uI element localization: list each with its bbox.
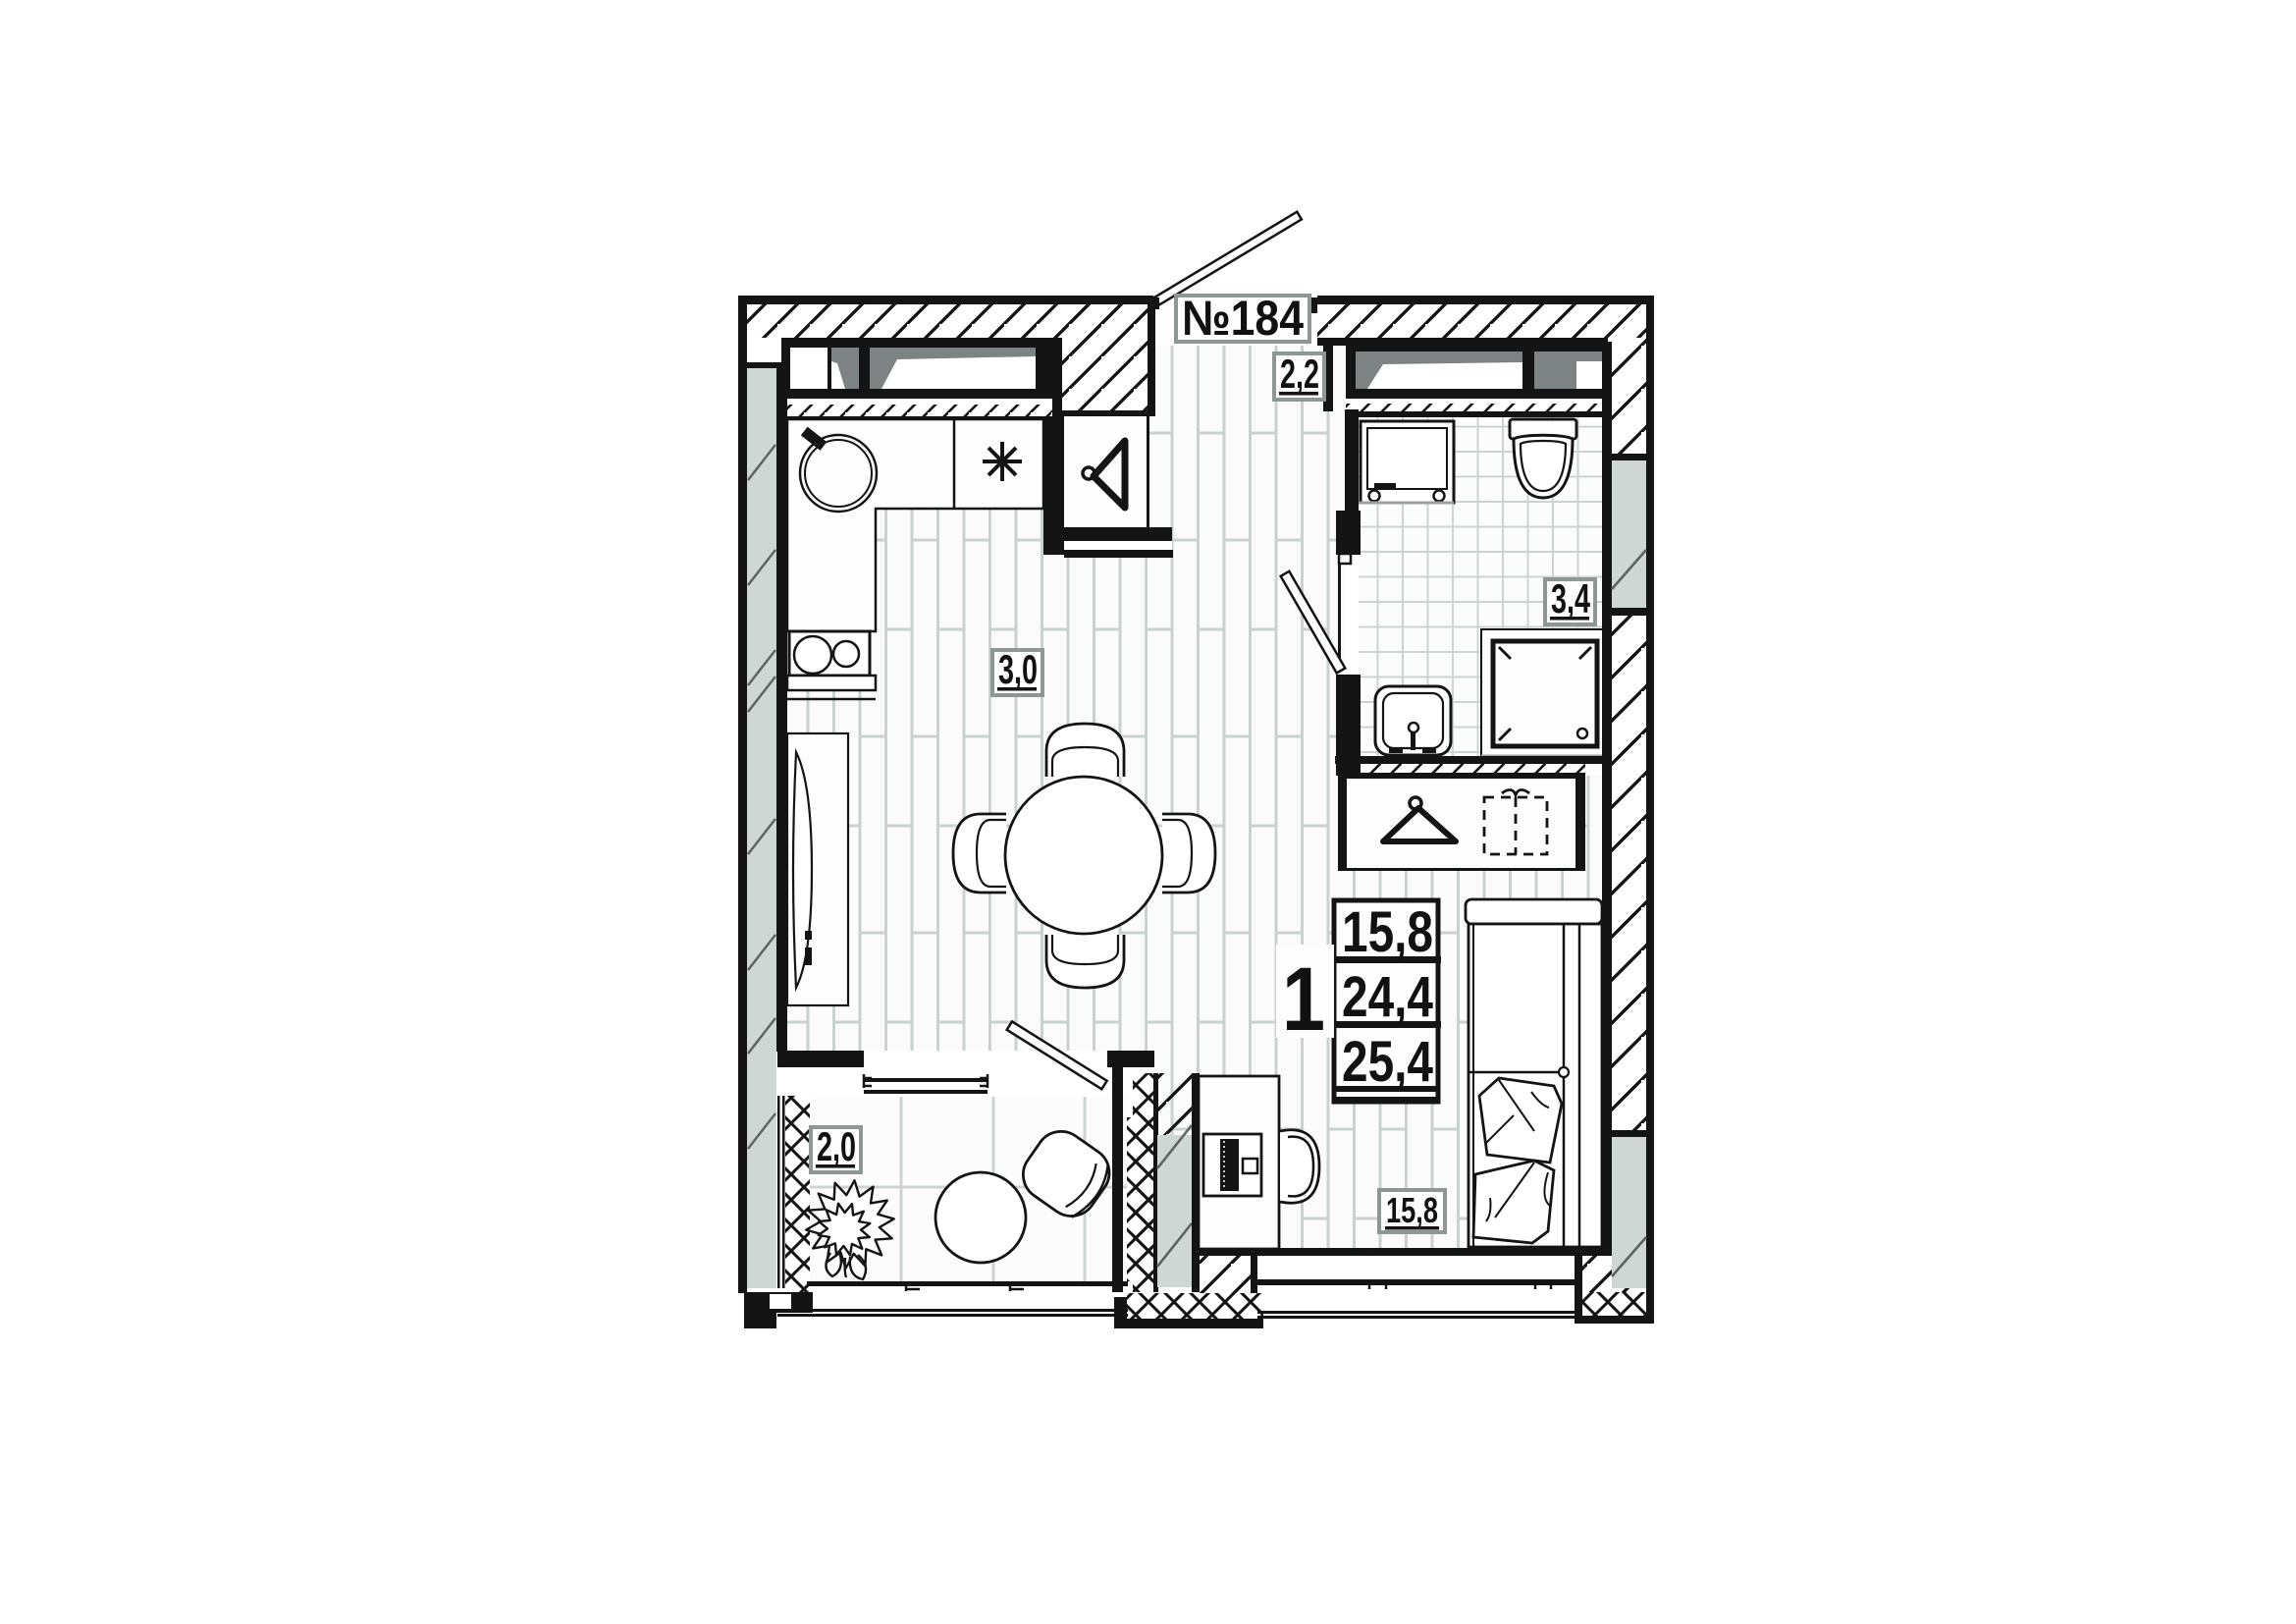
- svg-text:15,8: 15,8: [1386, 1190, 1438, 1230]
- svg-text:15,8: 15,8: [1342, 900, 1433, 964]
- svg-text:3,0: 3,0: [998, 646, 1038, 692]
- svg-text:1: 1: [1282, 949, 1325, 1050]
- svg-text:2,0: 2,0: [817, 1123, 856, 1169]
- svg-text:2,2: 2,2: [1280, 351, 1319, 397]
- svg-text:24,4: 24,4: [1342, 965, 1433, 1029]
- svg-text:25,4: 25,4: [1342, 1030, 1433, 1094]
- svg-text:3,4: 3,4: [1551, 575, 1590, 622]
- svg-text:№184: №184: [1182, 291, 1304, 346]
